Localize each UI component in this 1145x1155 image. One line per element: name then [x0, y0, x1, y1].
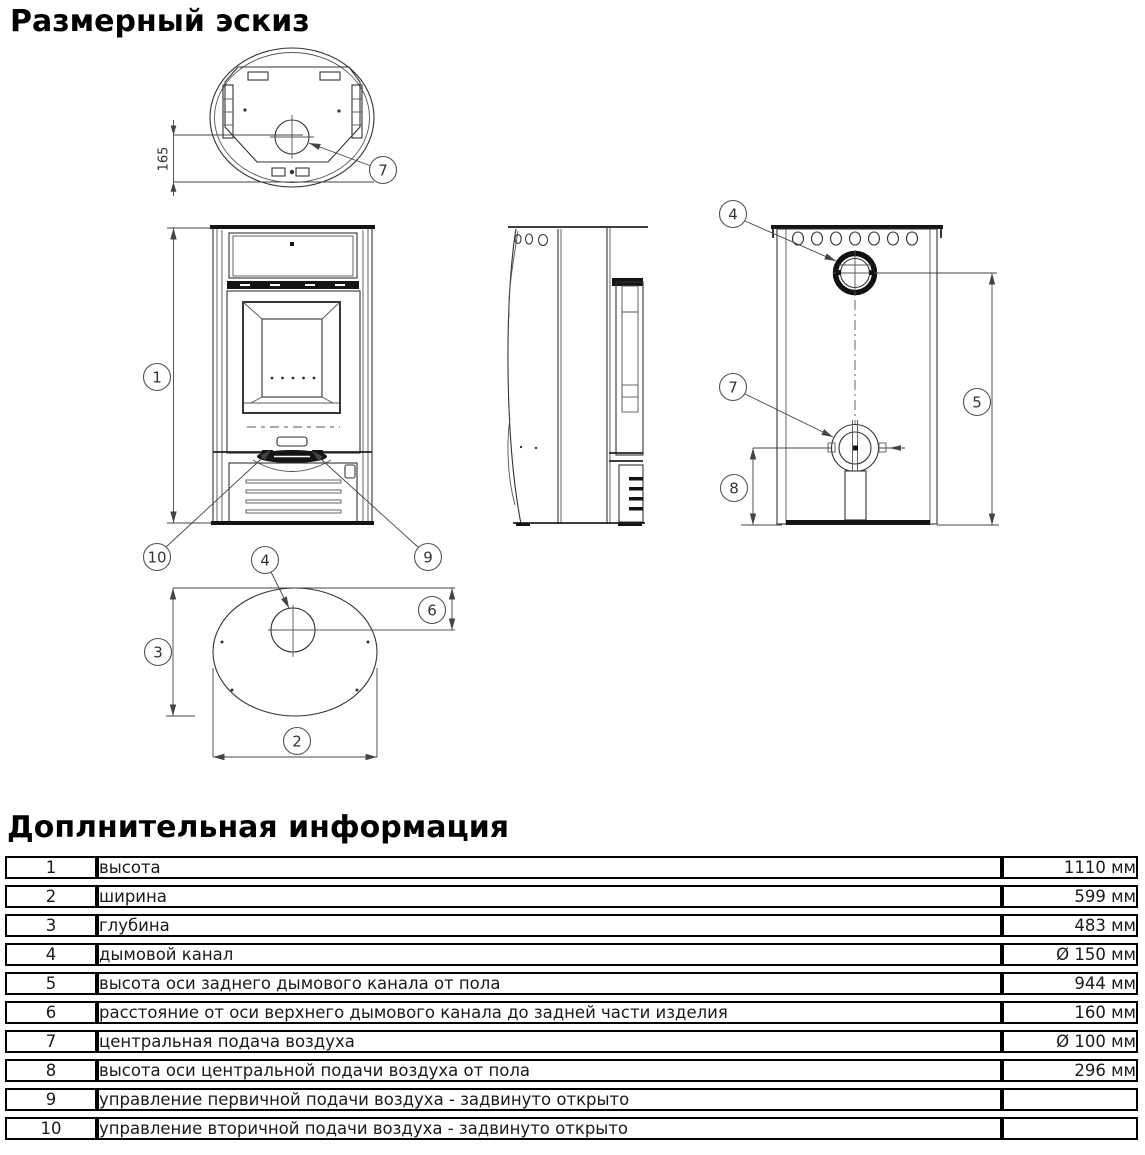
row-value: Ø 150 мм	[1002, 943, 1138, 966]
row-description: высота оси центральной подачи воздуха от…	[97, 1059, 1002, 1082]
svg-text:7: 7	[378, 162, 388, 180]
row-value: 160 мм	[1002, 1001, 1138, 1024]
row-description: глубина	[97, 914, 1002, 937]
front-view: 1	[144, 225, 442, 571]
dimension-flue-height: 5	[937, 273, 999, 525]
svg-text:5: 5	[972, 394, 982, 412]
callout-4-back: 4	[720, 201, 837, 262]
row-description: ширина	[97, 885, 1002, 908]
svg-text:4: 4	[728, 206, 738, 224]
row-value: Ø 100 мм	[1002, 1030, 1138, 1053]
table-row: 8 высота оси центральной подачи воздуха …	[5, 1059, 1138, 1082]
svg-text:10: 10	[147, 549, 166, 567]
side-view	[508, 227, 648, 526]
row-value: 944 мм	[1002, 972, 1138, 995]
dimension-width: 2	[213, 668, 377, 757]
table-row: 10 управление вторичной подачи воздуха -…	[5, 1117, 1138, 1140]
row-number: 1	[5, 856, 97, 879]
table-row: 5 высота оси заднего дымового канала от …	[5, 972, 1138, 995]
svg-text:6: 6	[427, 602, 437, 620]
table-row: 2 ширина 599 мм	[5, 885, 1138, 908]
row-number: 6	[5, 1001, 97, 1024]
callout-4-bottom: 4	[252, 547, 290, 609]
table-row: 6 расстояние от оси верхнего дымового ка…	[5, 1001, 1138, 1024]
row-number: 8	[5, 1059, 97, 1082]
row-description: высота оси заднего дымового канала от по…	[97, 972, 1002, 995]
bottom-view: 4 3 2 6	[145, 547, 456, 758]
dimension-165-label: 165	[157, 147, 172, 172]
dimension-table: 1 высота 1110 мм 2 ширина 599 мм 3 глуби…	[5, 850, 1138, 1146]
top-view: 165 7	[157, 48, 397, 196]
svg-text:9: 9	[423, 549, 433, 567]
dimension-depth: 3	[145, 588, 196, 716]
row-number: 9	[5, 1088, 97, 1111]
svg-text:8: 8	[729, 480, 739, 498]
row-number: 2	[5, 885, 97, 908]
table-row: 9 управление первичной подачи воздуха - …	[5, 1088, 1138, 1111]
row-number: 3	[5, 914, 97, 937]
row-description: дымовой канал	[97, 943, 1002, 966]
svg-text:2: 2	[292, 733, 302, 751]
row-description: расстояние от оси верхнего дымового кана…	[97, 1001, 1002, 1024]
dimension-flue-offset: 6	[419, 588, 453, 630]
row-value	[1002, 1088, 1138, 1111]
row-value	[1002, 1117, 1138, 1140]
row-value: 599 мм	[1002, 885, 1138, 908]
table-row: 3 глубина 483 мм	[5, 914, 1138, 937]
svg-text:3: 3	[153, 644, 163, 662]
section-title: Доплнительная информация	[7, 810, 509, 845]
row-value: 483 мм	[1002, 914, 1138, 937]
row-number: 4	[5, 943, 97, 966]
dimensional-sketch: 165 7 1	[0, 0, 1145, 800]
back-view: 4 7 8 5	[720, 201, 1000, 526]
dimension-air-height: 8	[721, 448, 783, 525]
table-row: 4 дымовой канал Ø 150 мм	[5, 943, 1138, 966]
callout-7-back: 7	[720, 374, 834, 438]
row-value: 296 мм	[1002, 1059, 1138, 1082]
row-description: управление вторичной подачи воздуха - за…	[97, 1117, 1002, 1140]
row-description: высота	[97, 856, 1002, 879]
row-description: центральная подача воздуха	[97, 1030, 1002, 1053]
dimension-165: 165	[157, 120, 375, 196]
svg-text:7: 7	[728, 379, 738, 397]
row-number: 10	[5, 1117, 97, 1140]
svg-text:1: 1	[152, 369, 162, 387]
table-row: 1 высота 1110 мм	[5, 856, 1138, 879]
row-number: 7	[5, 1030, 97, 1053]
row-description: управление первичной подачи воздуха - за…	[97, 1088, 1002, 1111]
svg-text:4: 4	[260, 552, 270, 570]
callout-9: 9	[312, 451, 442, 571]
row-number: 5	[5, 972, 97, 995]
row-value: 1110 мм	[1002, 856, 1138, 879]
dimension-height: 1	[144, 228, 215, 523]
table-row: 7 центральная подача воздуха Ø 100 мм	[5, 1030, 1138, 1053]
